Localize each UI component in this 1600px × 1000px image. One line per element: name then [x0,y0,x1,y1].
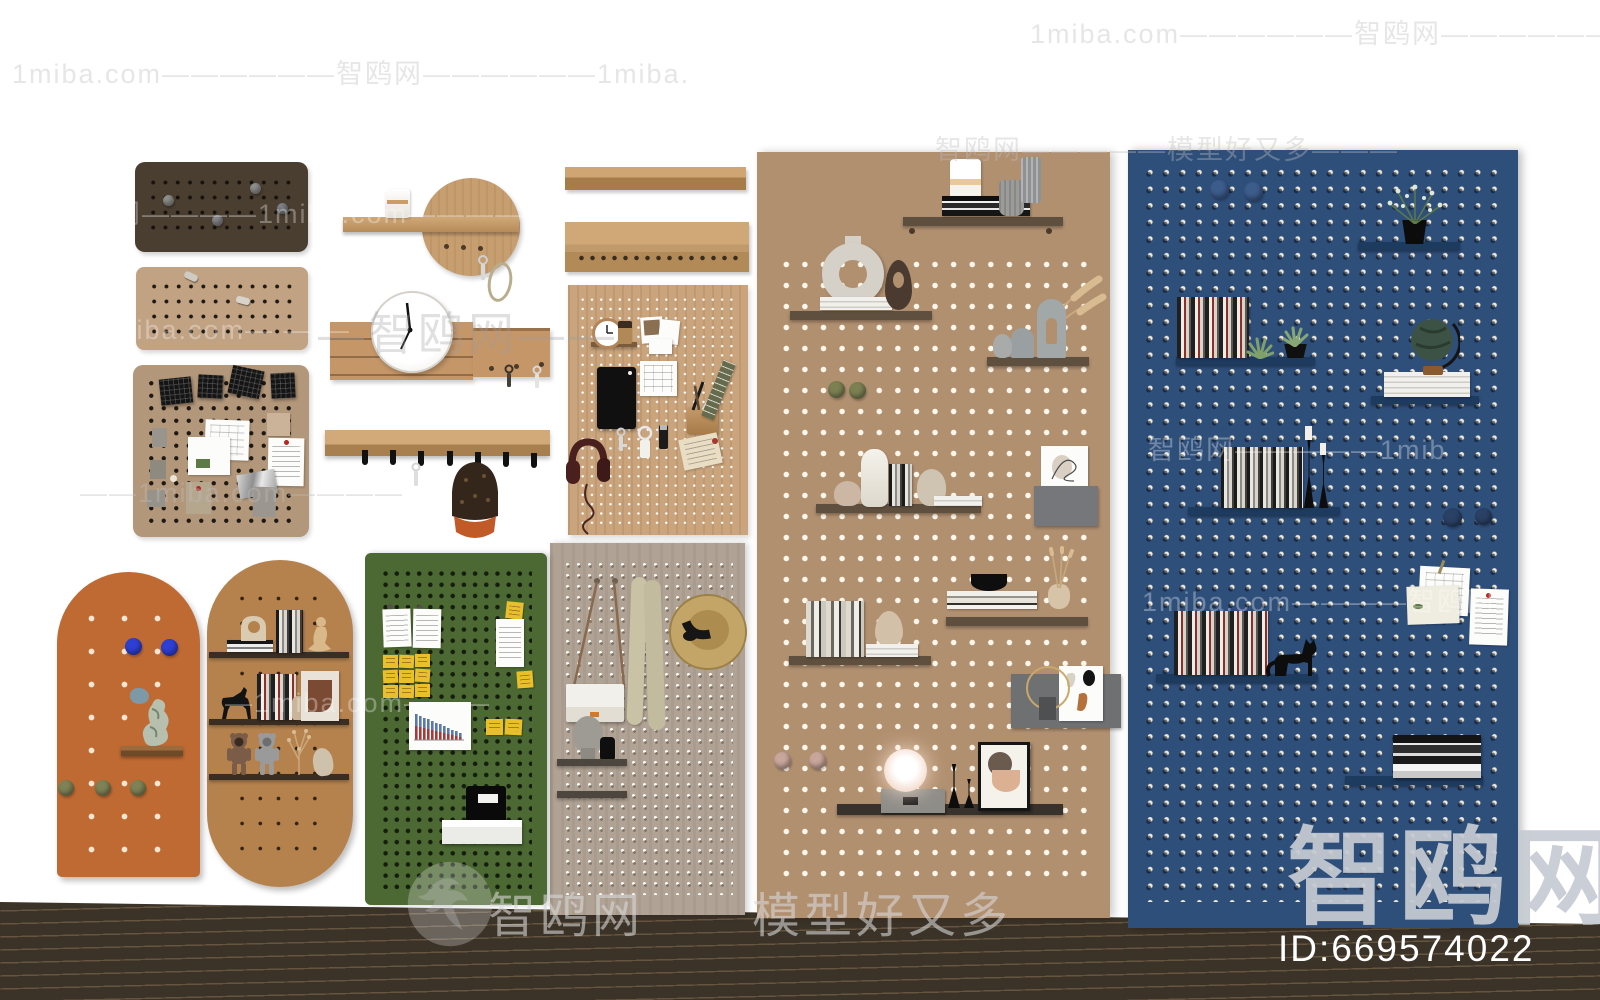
straw-hat [668,592,748,672]
blue-knob [1244,182,1263,201]
coat-hook [503,452,509,467]
shelf-peg [1046,228,1052,234]
book-stack [227,640,273,652]
watermark-big-site: 智鸥网 [1287,792,1600,946]
teardrop-vase-beige [875,611,903,647]
bud-vase-stems-icon [1042,546,1076,588]
woven-patch [197,374,223,398]
olive-knob [95,780,111,796]
sticky-note [516,670,533,688]
globe [1408,316,1460,376]
stone-sculpture [138,697,174,749]
watermark-row: 1miba.com——————智鸥网——————1miba. [12,52,690,91]
arch-vase-hole [1046,318,1057,344]
sticky-note [383,655,398,668]
blue-knob [1210,180,1229,199]
book-stack [1393,735,1481,778]
blue-knob [1443,508,1462,527]
books [889,464,912,506]
book-stack [934,496,982,506]
scene: 1miba.com——————智鸥网——————1mi 1miba.com———… [0,0,1600,1000]
watermark-row: 智鸥网—————1mib [1148,428,1447,467]
rail-hook-row [576,255,741,261]
black-sculpture-notch [478,794,498,803]
photo-card [188,437,230,475]
tan-shelf [789,656,931,665]
key-hook [461,245,466,250]
pinned-document [496,619,524,667]
watermark-row: —智鸥网—— [318,298,618,364]
coat-rack [325,430,550,456]
key-hook [478,246,483,251]
bear-figures [225,730,283,776]
pink-knob [809,752,826,769]
olive-knob [58,780,74,796]
hanging-keys-icon [529,365,545,395]
beige-note [267,413,290,436]
arch-sculpture [237,614,270,641]
green-ball [828,381,845,398]
book-stack [866,644,918,657]
white-shelf-box [442,820,522,844]
blue-shelf [1188,507,1340,515]
gray-card [152,428,167,447]
dry-branch [282,728,316,775]
hanging-key-icon [408,462,424,492]
books [806,601,864,657]
sticky-note [486,719,503,735]
watermark-row: ——1miba.com———— [80,478,404,509]
woven-patch [270,372,295,398]
framed-picture-arc [992,770,1020,792]
blue-knob [1475,508,1492,525]
seated-figure [306,616,333,655]
bust-sculpture [573,716,603,752]
key-hook [489,366,494,371]
polaroid [649,339,672,354]
books [276,610,303,653]
lamp-slot [903,797,918,805]
coat-hook [531,453,537,468]
glow-lamp [884,749,927,792]
books [1174,611,1268,675]
black-bowl [971,574,1007,591]
blue-knob [161,639,178,656]
sticky-note [399,670,414,683]
baseball-cap [448,458,502,540]
model-id-badge: ID:669574022 [1278,928,1534,970]
taupe-shelf [557,759,627,766]
olive-knob [130,780,146,796]
photo-green [196,459,210,468]
key-hook [444,244,449,249]
gray-box [1034,486,1098,526]
hanging-keys-icon [501,364,517,394]
sticky-note [415,668,431,682]
arch-vase-small [1011,328,1034,358]
dark-card [1039,697,1056,720]
pampas-grass [1022,268,1110,332]
sticky-note [399,655,415,669]
watermark-row: 智鸥网—————模型好又多——— [935,128,1399,167]
tan-shelf [946,617,1088,626]
potted-plant-icon [1380,180,1450,224]
red-pin [284,440,289,445]
tablet-dot [628,371,632,375]
sticky-note [383,670,399,684]
blue-knob [125,638,142,655]
watermark-row: —1miba.com——— [225,688,491,719]
watermark-tagline: 模型好又多 [752,876,1012,946]
sticky-note [415,654,430,667]
tan-shelf [790,311,932,320]
book-stack [820,297,892,310]
watermark-row: 1miba.com— — — [95,315,351,346]
wall-rail-plain [565,167,746,190]
bag-strap-icon [566,580,630,690]
wall-rail-hooks [565,222,749,272]
succulent-icon [1246,336,1274,359]
stamp-dot [712,438,718,444]
line-art-icon [1044,449,1085,485]
taupe-shelf [557,791,627,798]
watermark-row: 1miba.com————智鸥网 [1142,580,1495,619]
green-ball [849,382,866,399]
sticky-note [505,719,523,736]
teardrop-vase-hole [893,272,904,288]
coat-hook [390,450,396,465]
blue-shelf [1371,396,1479,404]
coat-hook [362,450,368,465]
headphones [564,436,610,536]
gray-card [150,460,166,479]
sculpture-shelf [121,746,183,756]
watermark-row: 1miba.com——————智鸥网——————1mi [1030,12,1600,51]
sticky-note [505,601,524,620]
watermark-row: 智鸥网————1miba.com———— [55,192,524,231]
white-note [413,609,442,648]
white-note [382,609,411,648]
seagull-logo-icon [405,860,495,948]
books [1177,297,1249,358]
black-sculpture [466,786,506,822]
round-vase [993,334,1012,358]
tablet [597,367,636,429]
shelf-peg [909,228,915,234]
book-stack [947,591,1037,609]
tan-shelf [903,217,1063,226]
cat-figure [1266,634,1318,678]
pink-knob [774,752,791,769]
coffee-cup [618,321,632,344]
tall-white-vase [861,449,888,507]
usb-tip [660,425,667,430]
ring-sculpture [822,243,884,305]
blush-vase [834,481,861,506]
watermark-site: 智鸥网 [488,876,644,946]
tan-shelf [987,357,1089,366]
orange-arch-pegboard [57,572,200,877]
succulent-icon [1281,326,1309,347]
keys-icon [612,427,630,457]
wall-calendar [640,361,677,396]
keyring-tag-icon [635,425,655,461]
woven-patch [159,376,194,405]
